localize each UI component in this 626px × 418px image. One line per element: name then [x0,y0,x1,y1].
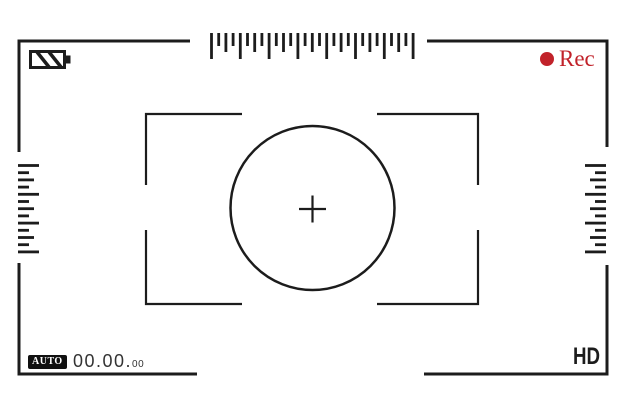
focus-corner-top-right-icon [377,114,478,185]
crosshair-icon [299,196,326,223]
ruler-tick [354,33,357,59]
rec-indicator: Rec [540,47,595,70]
auto-mode-badge: AUTO [28,355,67,369]
ruler-tick [18,164,39,167]
ruler-tick [347,33,350,46]
focus-corner-bottom-left-icon [146,230,242,304]
ruler-tick [585,251,606,254]
ruler-tick [253,33,256,52]
ruler-tick [397,33,400,52]
ruler-tick [282,33,285,52]
right-ruler-icon [585,164,606,253]
record-dot-icon [540,52,554,66]
ruler-tick [585,164,606,167]
ruler-tick [210,33,213,59]
ruler-tick [18,179,34,182]
ruler-tick [405,33,408,46]
ruler-tick [595,186,606,189]
ruler-tick [18,207,34,210]
left-ruler-icon [18,164,39,253]
ruler-tick [383,33,386,59]
ruler-tick [369,33,372,52]
timecode: 00.00.00 [73,351,144,372]
ruler-tick [595,243,606,246]
ruler-tick [595,229,606,232]
timecode-sub: 00 [132,359,144,370]
ruler-tick [595,200,606,203]
ruler-tick [412,33,415,59]
ruler-tick [18,222,39,225]
ruler-tick [590,207,606,210]
ruler-tick [18,200,29,203]
ruler-tick [18,229,29,232]
ruler-tick [340,33,343,52]
camera-viewfinder: Rec AUTO 00.00.00 HD [0,0,626,418]
ruler-tick [275,33,278,46]
ruler-tick [217,33,220,46]
battery-icon [31,52,71,68]
ruler-tick [595,171,606,174]
ruler-tick [376,33,379,46]
ruler-tick [18,193,39,196]
timecode-main: 00.00. [73,351,132,371]
ruler-tick [585,193,606,196]
ruler-tick [225,33,228,52]
ruler-tick [325,33,328,59]
focus-corner-top-left-icon [146,114,242,185]
ruler-tick [304,33,307,46]
ruler-tick [18,236,34,239]
rec-label: Rec [559,47,595,70]
frame-corner-top-left-icon [19,41,190,152]
ruler-tick [297,33,300,59]
ruler-tick [318,33,321,46]
ruler-tick [595,215,606,218]
ruler-tick [18,186,29,189]
ruler-tick [18,243,29,246]
ruler-tick [18,215,29,218]
ruler-tick [585,222,606,225]
ruler-tick [18,171,29,174]
ruler-tick [333,33,336,46]
top-ruler-icon [210,33,414,59]
ruler-tick [590,179,606,182]
ruler-tick [246,33,249,46]
auto-mode-label: AUTO [32,356,63,367]
focus-corner-bottom-right-icon [377,230,478,304]
ruler-tick [268,33,271,59]
ruler-tick [390,33,393,46]
hd-label: HD [573,345,600,369]
ruler-tick [361,33,364,46]
ruler-tick [18,251,39,254]
ruler-tick [232,33,235,46]
ruler-tick [289,33,292,46]
ruler-tick [590,236,606,239]
ruler-tick [239,33,242,59]
ruler-tick [311,33,314,52]
ruler-tick [261,33,264,46]
